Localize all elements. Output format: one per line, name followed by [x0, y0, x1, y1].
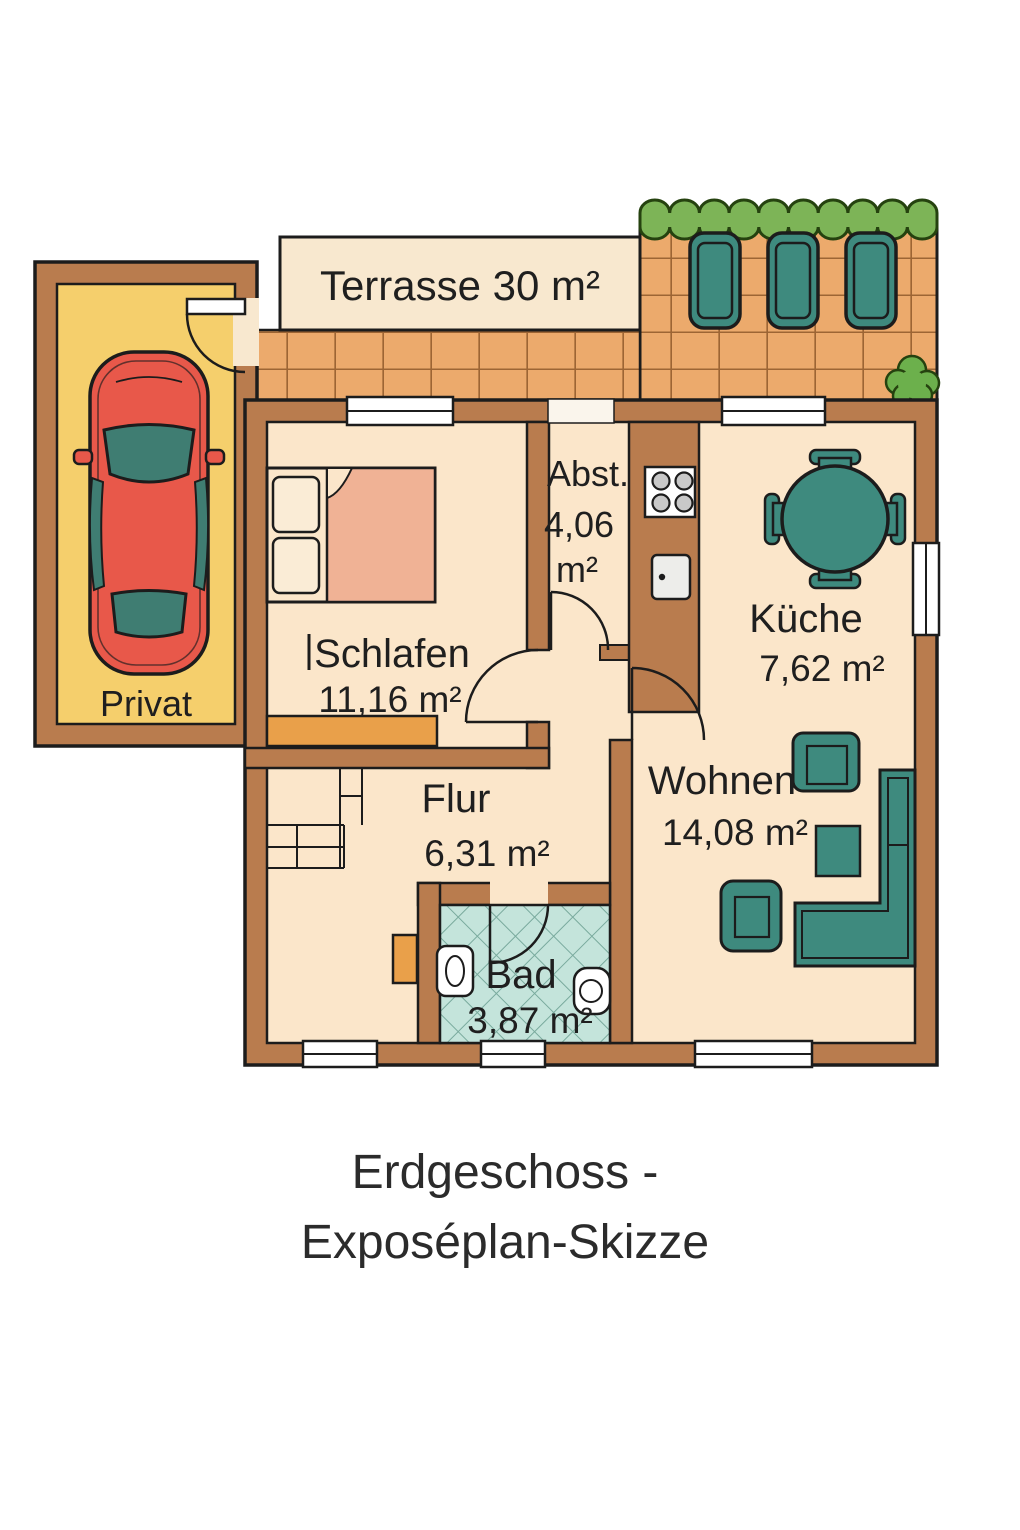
pillow — [273, 538, 319, 593]
flur-label: Flur — [422, 777, 491, 821]
kueche-label: Küche — [749, 597, 862, 641]
car-rear-window — [112, 591, 186, 638]
kueche-area: 7,62 m² — [759, 648, 884, 689]
burner — [676, 473, 693, 490]
car-side-window-left — [90, 478, 104, 590]
wall-flur-wohnen — [610, 740, 632, 1043]
armchair — [793, 733, 859, 791]
garage-label: Privat — [100, 683, 192, 724]
bad-label: Bad — [485, 953, 556, 997]
door-leaf — [187, 299, 245, 314]
bath-shelf — [393, 935, 417, 983]
car-mirror-left — [74, 450, 92, 464]
plan-title: Erdgeschoss - Exposéplan-Skizze — [301, 1146, 709, 1269]
wall-stub-abst — [600, 645, 629, 660]
pillow — [273, 477, 319, 532]
cooktop — [645, 467, 695, 517]
burner — [653, 495, 670, 512]
blanket — [327, 468, 435, 602]
wall-schlafen-flur — [245, 748, 549, 768]
armchair — [721, 881, 781, 951]
burner — [676, 495, 693, 512]
abst-label: Abst. — [547, 453, 629, 494]
abst-area-value: 4,06 — [544, 504, 614, 545]
title-line-2: Exposéplan-Skizze — [301, 1216, 709, 1269]
toilet — [437, 946, 473, 996]
fridge-handle — [659, 574, 665, 580]
car-side-window-right — [194, 478, 208, 590]
terrace-label: Terrasse 30 m² — [320, 262, 600, 309]
car-windshield — [104, 425, 194, 483]
bed — [267, 468, 435, 602]
schlafen-label: Schlafen — [314, 632, 470, 676]
garage: Privat — [35, 262, 259, 746]
car — [74, 352, 224, 674]
window-schlafen — [347, 397, 453, 425]
window-bad — [481, 1041, 545, 1067]
terrace-tiles-left — [257, 330, 640, 403]
sun-lounger — [768, 233, 818, 328]
wohnen-label: Wohnen — [648, 759, 796, 803]
wohnen-area: 14,08 m² — [662, 812, 808, 853]
side-table — [816, 826, 860, 876]
window-flur — [303, 1041, 377, 1067]
terrace: Terrasse 30 m² — [257, 200, 939, 408]
floorplan-drawing: Terrasse 30 m² Privat — [0, 0, 1020, 1530]
car-mirror-right — [206, 450, 224, 464]
door-opening-abst-terrasse — [548, 399, 614, 423]
window-wohnen — [695, 1041, 812, 1067]
title-line-1: Erdgeschoss - — [352, 1146, 659, 1199]
window-kueche-right — [913, 543, 939, 635]
abst-area-unit: m² — [556, 549, 598, 590]
sideboard — [267, 716, 437, 746]
fridge — [652, 555, 690, 599]
bad-door-opening — [490, 881, 548, 907]
floorplan-page: Terrasse 30 m² Privat — [0, 0, 1020, 1530]
sun-lounger — [690, 233, 740, 328]
burner — [653, 473, 670, 490]
schlafen-area: 11,16 m² — [318, 679, 461, 720]
window-kueche-top — [722, 397, 825, 425]
dining-table — [782, 466, 888, 572]
bad-area: 3,87 m² — [467, 1000, 592, 1041]
sun-lounger — [846, 233, 896, 328]
flur-area: 6,31 m² — [424, 833, 549, 874]
